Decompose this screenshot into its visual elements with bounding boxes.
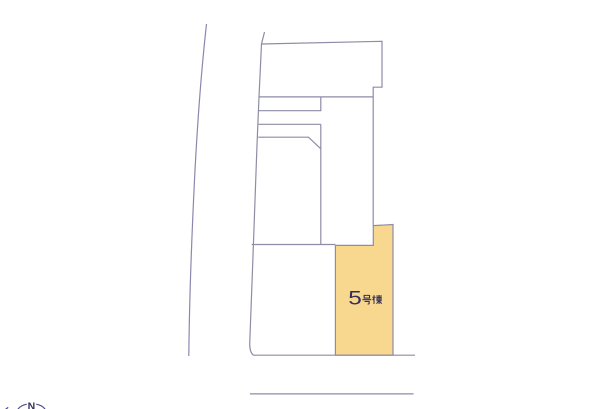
svg-text:N: N [28,401,36,409]
svg-text:5: 5 [348,287,362,309]
